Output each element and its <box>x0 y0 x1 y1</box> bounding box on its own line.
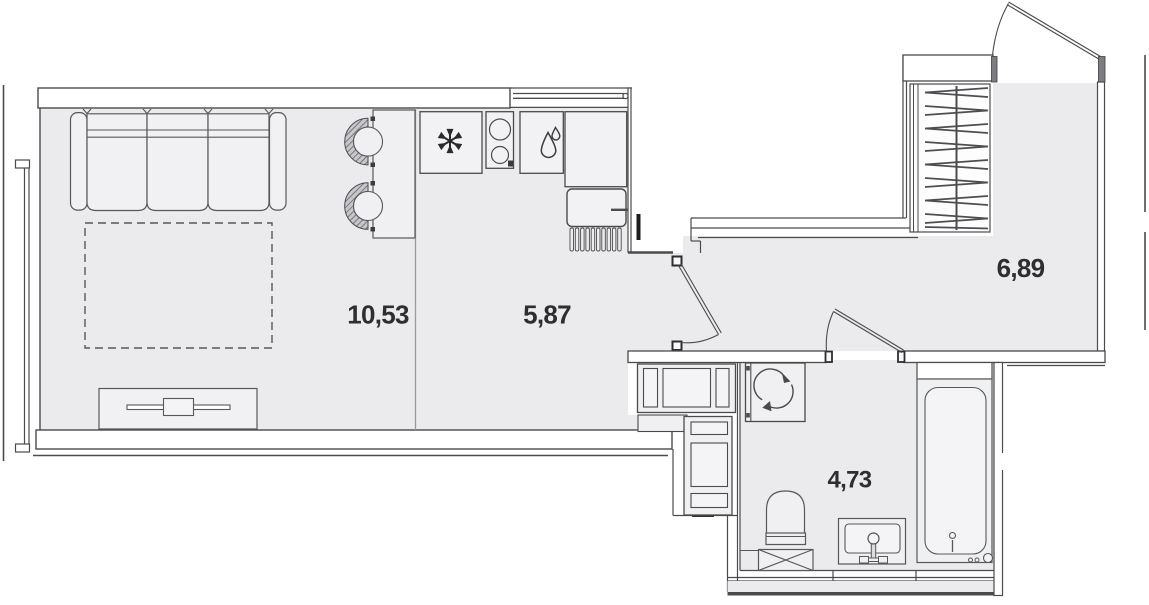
svg-text:5,87: 5,87 <box>523 300 571 330</box>
svg-text:10,53: 10,53 <box>347 300 409 330</box>
svg-text:4,73: 4,73 <box>828 467 872 494</box>
svg-text:6,89: 6,89 <box>997 253 1045 283</box>
